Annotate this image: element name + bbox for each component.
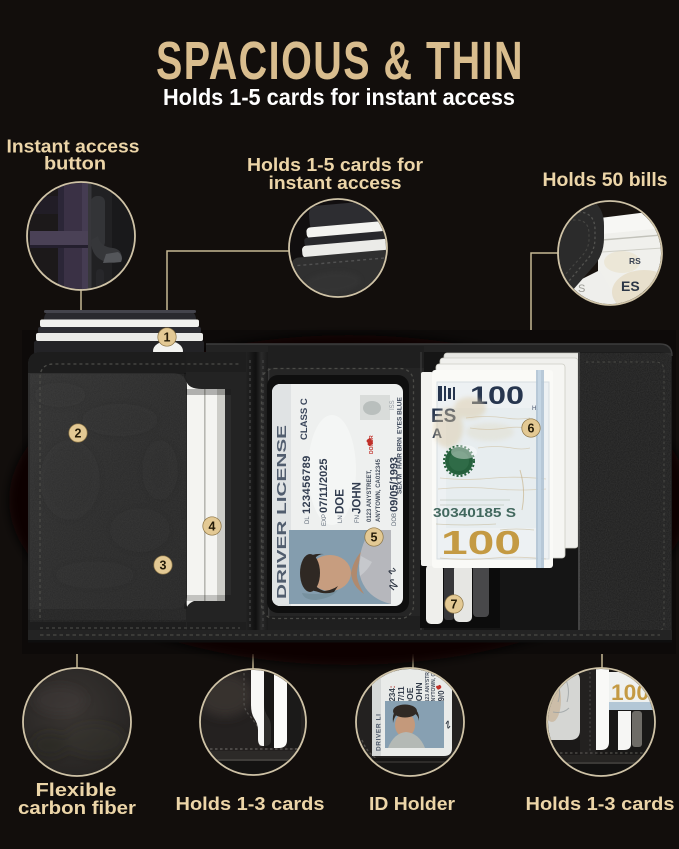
svg-text:DOE: DOE	[335, 489, 347, 514]
svg-text:JOHN: JOHN	[352, 482, 364, 514]
svg-text:EXP: EXP	[322, 514, 328, 526]
svg-text:100: 100	[441, 524, 521, 561]
svg-text:EYES BLUE: EYES BLUE	[397, 396, 404, 434]
svg-text:Holds 1-5 cards for: Holds 1-5 cards for	[247, 155, 423, 175]
svg-text:DRIVER LICENSE: DRIVER LICENSE	[275, 425, 289, 599]
svg-text:Holds 1-3 cards: Holds 1-3 cards	[176, 794, 325, 814]
svg-text:instant access: instant access	[269, 173, 402, 193]
svg-text:SEX M: SEX M	[397, 474, 404, 494]
svg-text:6: 6	[528, 422, 535, 436]
svg-text:4: 4	[209, 520, 216, 534]
svg-text:DOB: DOB	[392, 513, 398, 526]
svg-text:2: 2	[75, 427, 82, 441]
svg-text:FN: FN	[355, 515, 361, 523]
svg-text:ES: ES	[621, 278, 640, 294]
svg-text:SPACIOUS & THIN: SPACIOUS & THIN	[156, 31, 524, 91]
svg-text:Holds 50 bills: Holds 50 bills	[543, 169, 668, 191]
svg-text:S: S	[578, 283, 585, 295]
svg-text:DRIVER LI: DRIVER LI	[376, 713, 383, 751]
svg-text:button: button	[44, 154, 106, 174]
svg-text:1: 1	[164, 331, 171, 345]
svg-text:ISS: ISS	[390, 400, 396, 410]
svg-text:ANYTOWN, CA012345: ANYTOWN, CA012345	[376, 458, 382, 522]
svg-text:ID Holder: ID Holder	[369, 794, 455, 814]
svg-text:Holds 1-5 cards for instant ac: Holds 1-5 cards for instant access	[163, 84, 515, 110]
svg-text:RS: RS	[629, 256, 641, 266]
svg-text:LN: LN	[338, 515, 344, 523]
svg-text:5: 5	[371, 531, 378, 545]
svg-text:HAIR BRN: HAIR BRN	[397, 437, 404, 469]
svg-text:DL: DL	[305, 516, 311, 524]
svg-text:Flexible: Flexible	[36, 780, 117, 800]
svg-text:7: 7	[451, 598, 458, 612]
svg-text:carbon fiber: carbon fiber	[18, 798, 136, 818]
svg-text:07/11/2025: 07/11/2025	[318, 459, 330, 513]
svg-text:Holds 1-3 cards: Holds 1-3 cards	[526, 794, 675, 814]
svg-text:CLASS C: CLASS C	[299, 398, 310, 440]
svg-text:30340185 S: 30340185 S	[433, 505, 516, 520]
svg-text:3: 3	[160, 559, 167, 573]
svg-text:123456789: 123456789	[301, 455, 313, 514]
svg-text:0123 ANYSTREET,: 0123 ANYSTREET,	[367, 470, 373, 522]
